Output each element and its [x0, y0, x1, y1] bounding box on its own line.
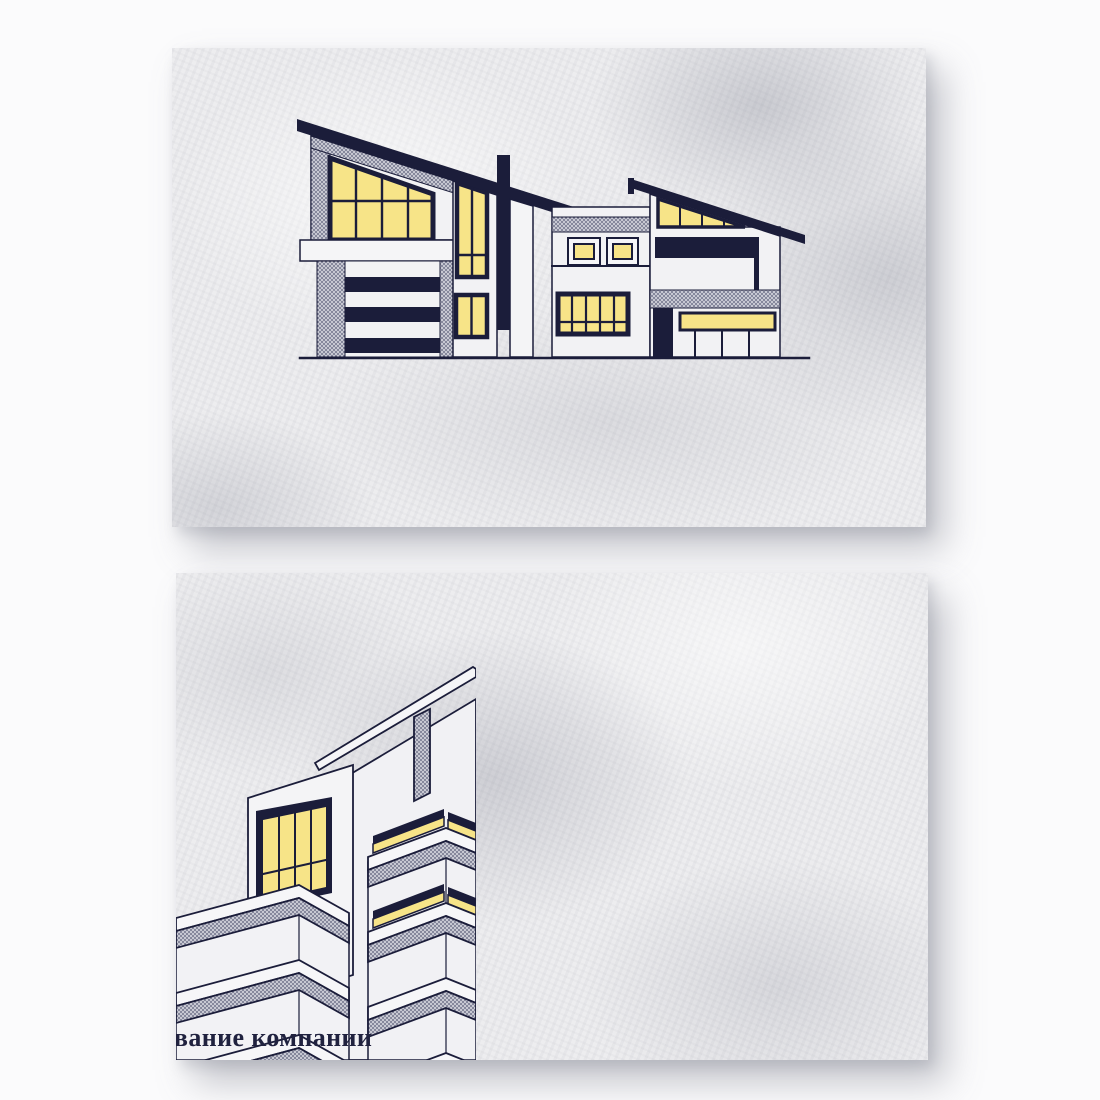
house-illustration: [297, 117, 813, 363]
business-card-mockup: СЛОГАН КОМПАНИИ: [0, 0, 1100, 1100]
first-name: ИМЯ: [228, 1049, 928, 1060]
card-back: Название компании ИМЯ ФАМИЛИЯ Должность …: [176, 573, 928, 1060]
person-name: ИМЯ ФАМИЛИЯ: [228, 1049, 928, 1060]
building-illustration: [176, 655, 476, 1060]
card-front: СЛОГАН КОМПАНИИ: [172, 48, 926, 527]
